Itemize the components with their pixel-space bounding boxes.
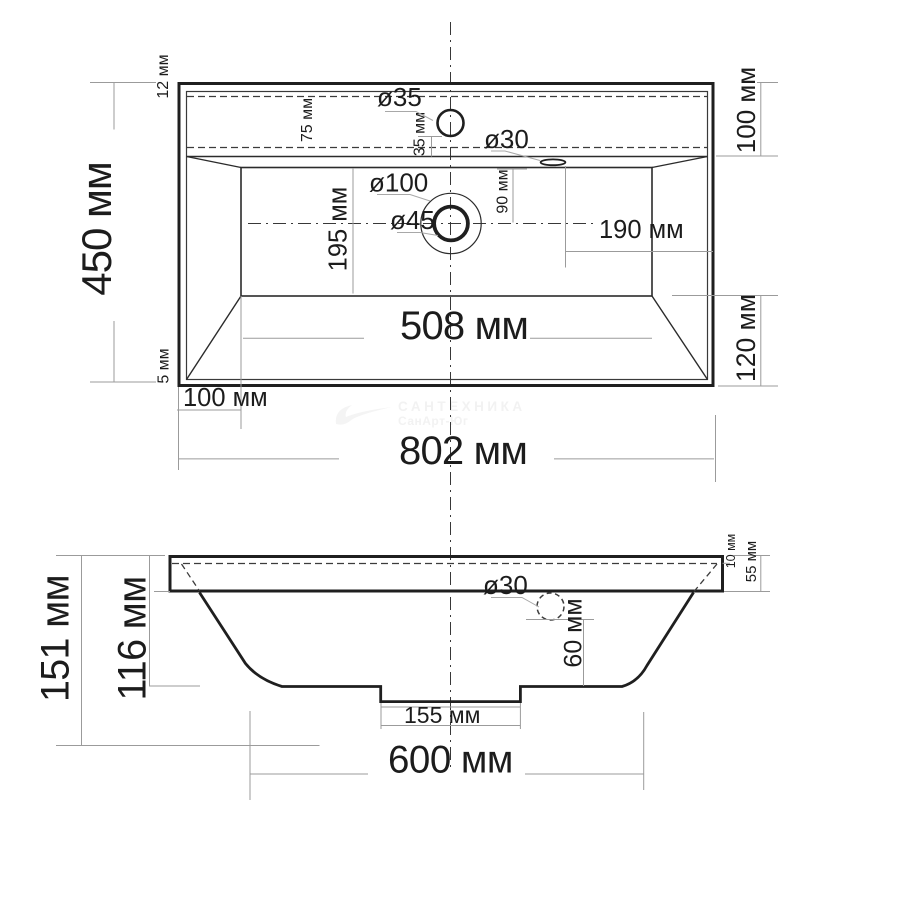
svg-text:12 мм: 12 мм bbox=[155, 54, 172, 98]
svg-text:450 мм: 450 мм bbox=[73, 162, 120, 296]
svg-text:САНТЕХНИКА: САНТЕХНИКА bbox=[398, 399, 526, 414]
svg-text:195 мм: 195 мм bbox=[325, 187, 353, 272]
svg-text:ø35: ø35 bbox=[377, 82, 422, 112]
svg-text:ø30: ø30 bbox=[484, 124, 529, 154]
svg-text:35 мм: 35 мм bbox=[412, 112, 429, 156]
svg-text:5 мм: 5 мм bbox=[156, 348, 173, 383]
svg-text:508 мм: 508 мм bbox=[400, 304, 528, 348]
svg-text:60 мм: 60 мм bbox=[560, 598, 588, 667]
svg-text:600 мм: 600 мм bbox=[388, 739, 513, 782]
svg-text:151 мм: 151 мм bbox=[33, 575, 77, 702]
svg-text:155 мм: 155 мм bbox=[404, 702, 480, 728]
svg-text:802 мм: 802 мм bbox=[399, 429, 527, 473]
svg-text:120 мм: 120 мм bbox=[731, 294, 761, 382]
svg-text:ø100: ø100 bbox=[369, 168, 428, 198]
svg-text:ø45: ø45 bbox=[390, 205, 435, 235]
svg-text:190 мм: 190 мм bbox=[599, 216, 684, 244]
svg-text:55 мм: 55 мм bbox=[743, 541, 760, 582]
svg-text:100 мм: 100 мм bbox=[183, 384, 268, 412]
svg-text:ø30: ø30 bbox=[483, 570, 528, 600]
svg-text:СанАрт-Юг: СанАрт-Юг bbox=[398, 414, 468, 428]
svg-text:100 мм: 100 мм bbox=[731, 67, 761, 153]
svg-text:75 мм: 75 мм bbox=[299, 98, 316, 142]
svg-text:116 мм: 116 мм bbox=[110, 576, 154, 700]
svg-text:10 мм: 10 мм bbox=[724, 534, 738, 569]
svg-text:90 мм: 90 мм bbox=[495, 169, 512, 213]
